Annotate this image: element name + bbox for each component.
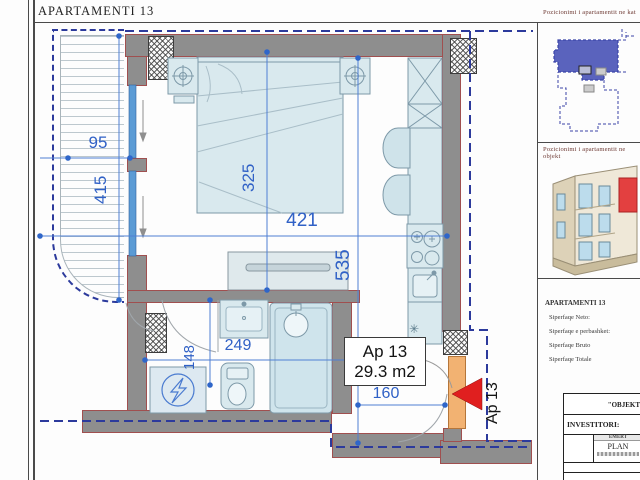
keyplan-caption: Pozicionimi i apartamentit ne kat: [543, 9, 639, 16]
titleblock-empty-row-2: [564, 473, 640, 480]
dim-bath-width: 249: [216, 338, 260, 354]
boiler-asterisk-symbol: ✳: [409, 322, 419, 336]
electrical-panel: [150, 367, 206, 413]
kitchen-units: [407, 58, 443, 344]
dim-room-width: 421: [262, 211, 342, 230]
floor-keyplan-diagram: [548, 28, 636, 138]
apartment-area: 29.3 m2: [354, 362, 415, 382]
building-3d-diagram: [545, 158, 640, 276]
dim-bed-length: 325: [240, 148, 257, 208]
dim-balcony-height: 415: [92, 160, 109, 220]
bed: [197, 57, 343, 213]
apartment-number: Ap 13: [363, 342, 407, 362]
info-row-bruto: Siperfaqe Bruto: [549, 342, 590, 349]
titleblock-investor-row: INVESTITORI:: [564, 415, 640, 435]
info-row-neto: Siperfaqe Neto:: [549, 314, 590, 321]
sidebar-divider-2: [537, 278, 640, 279]
titleblock: "OBJEKT INVESTITORI: EMERT PLAN: [563, 393, 640, 480]
entrance-apartment-label: Ap 13: [484, 372, 504, 434]
label-leader-line: [424, 360, 452, 388]
tv-dresser: [228, 252, 348, 290]
building-side-face: [553, 176, 575, 266]
apartment-label-box: Ap 13 29.3 m2: [344, 337, 426, 386]
dim-balcony-width: 95: [76, 134, 120, 151]
entrance-arrow-icon: [452, 378, 482, 410]
dim-entry-width: 160: [364, 386, 408, 402]
info-row-totale: Siperfaqe Totale: [549, 356, 592, 363]
dim-bath-height: 148: [182, 334, 197, 380]
titleblock-logo-cell: [564, 435, 594, 462]
toilet: [221, 363, 254, 409]
info-title: APARTAMENTI 13: [545, 299, 605, 307]
titleblock-object-row: "OBJEKT: [564, 394, 640, 415]
window-arrow-icon: [140, 100, 146, 237]
washbasin: [220, 300, 268, 338]
sidebar-divider-1: [537, 142, 640, 143]
kitchen-sink: [408, 268, 442, 302]
drawing-sheet: APARTAMENTI 13: [0, 0, 640, 480]
bar-chairs: [383, 128, 410, 215]
floor-plan: ✳ 95 415 325 421 535 148 249 160 Ap 13 2…: [0, 0, 537, 480]
titleblock-scale-note-illegible: [597, 452, 639, 456]
info-row-perbashket: Siperfaqe e perbashket:: [549, 328, 610, 335]
stove: [407, 224, 443, 268]
titleblock-name-main: PLAN: [594, 441, 640, 451]
highlighted-unit-marker: [619, 178, 637, 212]
bathroom-fixtures: [220, 300, 332, 413]
titleblock-name-cell: EMERT PLAN: [594, 435, 640, 462]
dim-room-height: 535: [334, 230, 353, 300]
window-strips: [129, 85, 146, 256]
shower: [270, 303, 332, 413]
titleblock-empty-row-1: [564, 463, 640, 473]
plan-vector-overlay: [0, 0, 537, 480]
